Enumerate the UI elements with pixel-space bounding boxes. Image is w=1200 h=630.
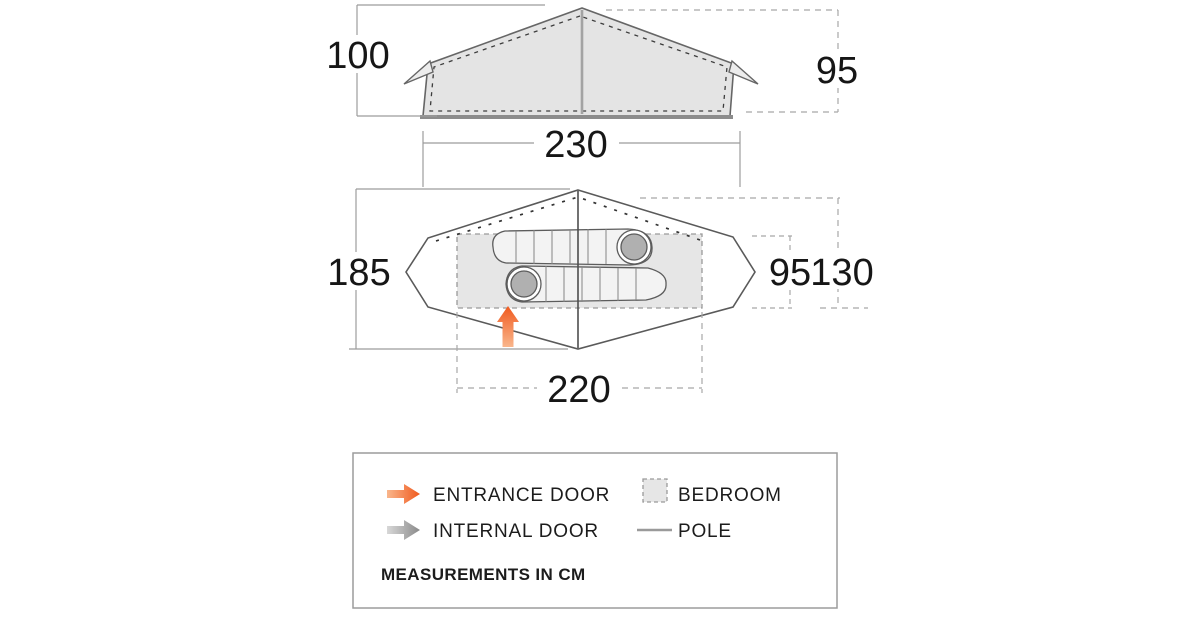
dim-100-label: 100 (326, 35, 389, 77)
diagram-canvas: 100 95 230 (0, 0, 1200, 630)
legend: ENTRANCE DOOR BEDROOM INTERNAL DOOR POLE… (353, 453, 837, 608)
tent-dimensions-diagram: 100 95 230 (0, 0, 1200, 630)
legend-bedroom-label: BEDROOM (678, 485, 782, 506)
sleeping-bag-top (493, 229, 652, 265)
sleeping-bag-top-hood-opening (621, 234, 647, 260)
sleeping-bag-bottom (506, 266, 666, 302)
dim-185-label: 185 (327, 252, 390, 294)
elevation-view: 100 95 230 (323, 5, 864, 187)
sleeping-bag-bottom-hood-opening (511, 271, 537, 297)
dim-220-label: 220 (547, 369, 610, 411)
bedroom-swatch-icon (643, 479, 667, 502)
legend-entrance-door-label: ENTRANCE DOOR (433, 485, 610, 506)
elevation-flysheet (423, 8, 734, 116)
dim-130-label: 130 (810, 252, 873, 294)
dim-95-plan-label: 95 (769, 252, 811, 294)
legend-internal-door-label: INTERNAL DOOR (433, 521, 599, 542)
legend-measurements-note: MEASUREMENTS IN CM (381, 565, 586, 584)
dim-230-label: 230 (544, 124, 607, 166)
plan-view: 185 95 130 220 (325, 189, 874, 411)
dim-95-elevation-label: 95 (816, 50, 858, 92)
legend-pole-label: POLE (678, 521, 732, 542)
